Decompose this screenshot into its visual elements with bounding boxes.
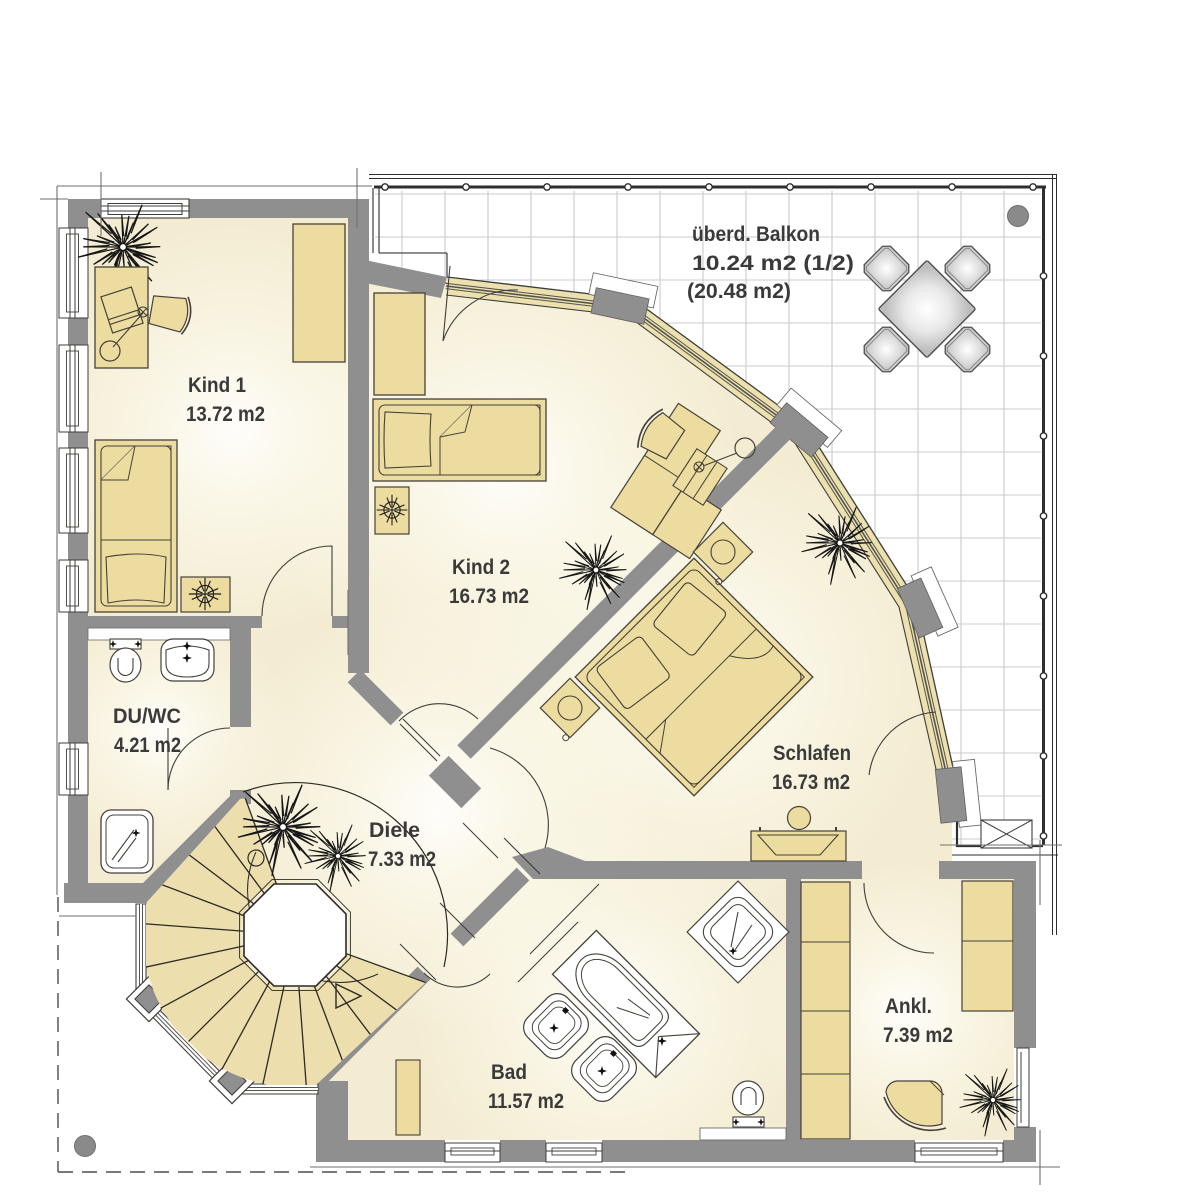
svg-text:7.33 m2: 7.33 m2 — [368, 848, 436, 871]
svg-text:13.72 m2: 13.72 m2 — [186, 403, 265, 426]
svg-text:11.57 m2: 11.57 m2 — [488, 1090, 564, 1113]
svg-text:16.73 m2: 16.73 m2 — [449, 585, 529, 608]
svg-text:Bad: Bad — [491, 1061, 527, 1084]
svg-text:Ankl.: Ankl. — [885, 995, 932, 1018]
svg-text:Kind 1: Kind 1 — [188, 374, 246, 397]
svg-text:DU/WC: DU/WC — [113, 705, 181, 728]
svg-text:Kind 2: Kind 2 — [452, 556, 510, 579]
svg-text:Schlafen: Schlafen — [773, 742, 851, 765]
svg-text:Diele: Diele — [369, 819, 420, 842]
svg-text:16.73 m2: 16.73 m2 — [772, 771, 850, 794]
svg-text:4.21 m2: 4.21 m2 — [114, 734, 181, 757]
svg-text:7.39 m2: 7.39 m2 — [883, 1024, 953, 1047]
